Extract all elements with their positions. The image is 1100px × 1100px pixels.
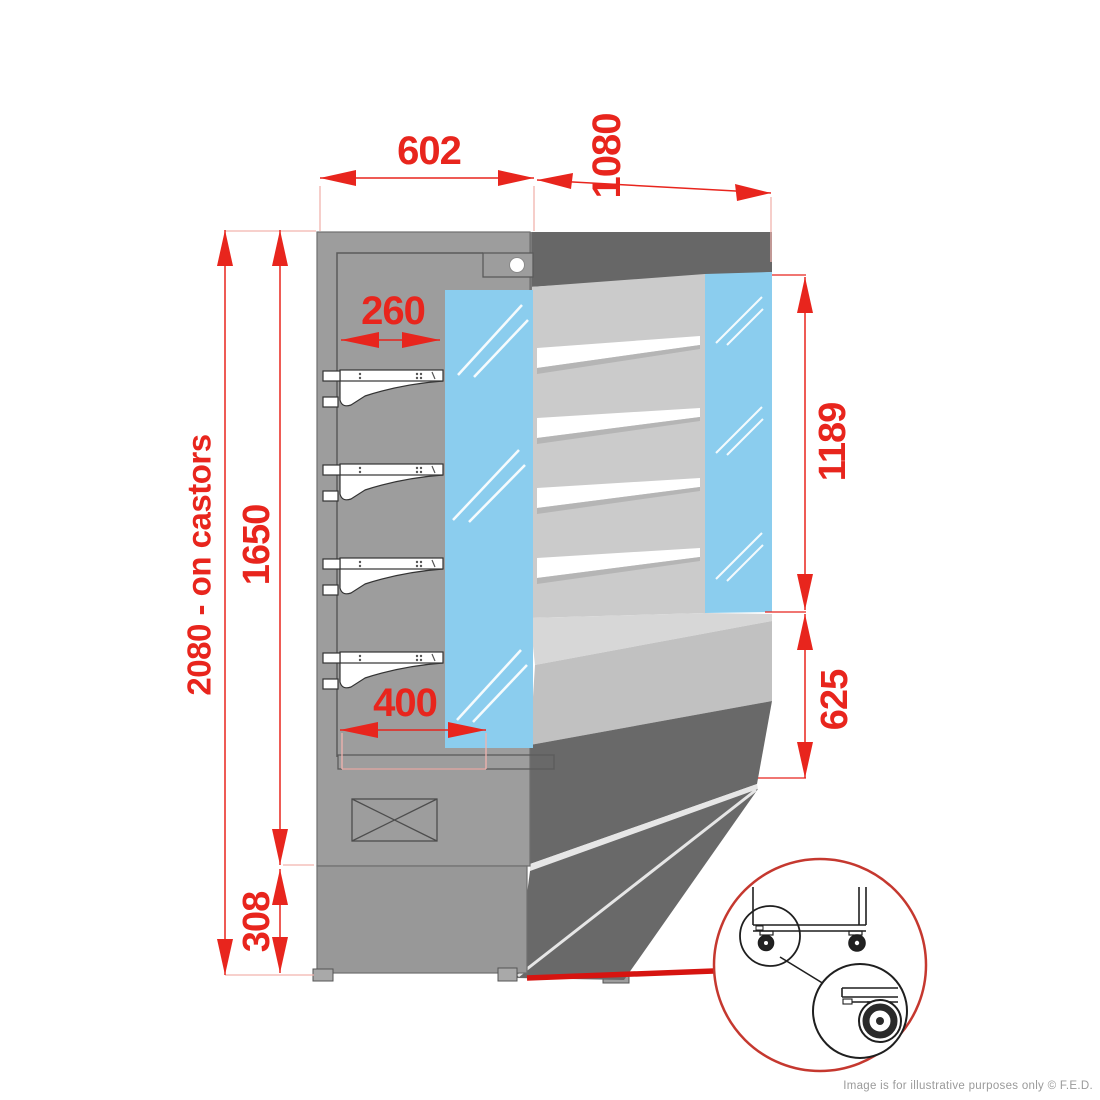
dim-label-base-front-height: 625 [814,669,856,730]
sensor-box [483,253,533,277]
arrow-down-icon [272,829,288,865]
arrow-down-icon [797,574,813,610]
dimension-diagram: 602 1080 260 400 2080 - on castors 1650 … [0,0,1100,1100]
dim-label-plinth-height: 308 [236,892,278,952]
arrow-left-icon [320,170,356,186]
dim-label-overall-height: 2080 - on castors [181,434,218,695]
footer-disclaimer: Image is for illustrative purposes only … [843,1080,1093,1092]
dim-label-shelf-depth: 260 [361,289,425,333]
arrow-up-icon [272,230,288,266]
dim-label-opening-height: 1189 [812,403,854,481]
sensor-lamp-icon [510,258,525,273]
cabinet-perspective [516,232,772,983]
dim-label-base-depth: 400 [373,681,437,725]
plinth-panel [317,866,527,973]
castor-magnified [813,964,907,1058]
castor-foot [498,968,517,981]
arrow-left-icon [537,173,573,189]
arrow-up-icon [797,277,813,313]
arrow-down-icon [217,939,233,975]
arrow-right-icon [498,170,534,186]
arrow-up-icon [217,230,233,266]
dim-label-body-height: 1650 [236,505,278,586]
cabinet-side-view [313,232,554,981]
arrow-up-icon [797,614,813,650]
dim-label-top-width: 602 [397,129,461,173]
glass-panel-left [445,290,533,748]
diagram-canvas: 602 1080 260 400 2080 - on castors 1650 … [0,0,1100,1100]
dim-label-top-depth: 1080 [585,114,629,199]
arrow-down-icon [797,742,813,778]
arrow-right-icon [735,184,771,201]
castor-foot [313,969,333,981]
